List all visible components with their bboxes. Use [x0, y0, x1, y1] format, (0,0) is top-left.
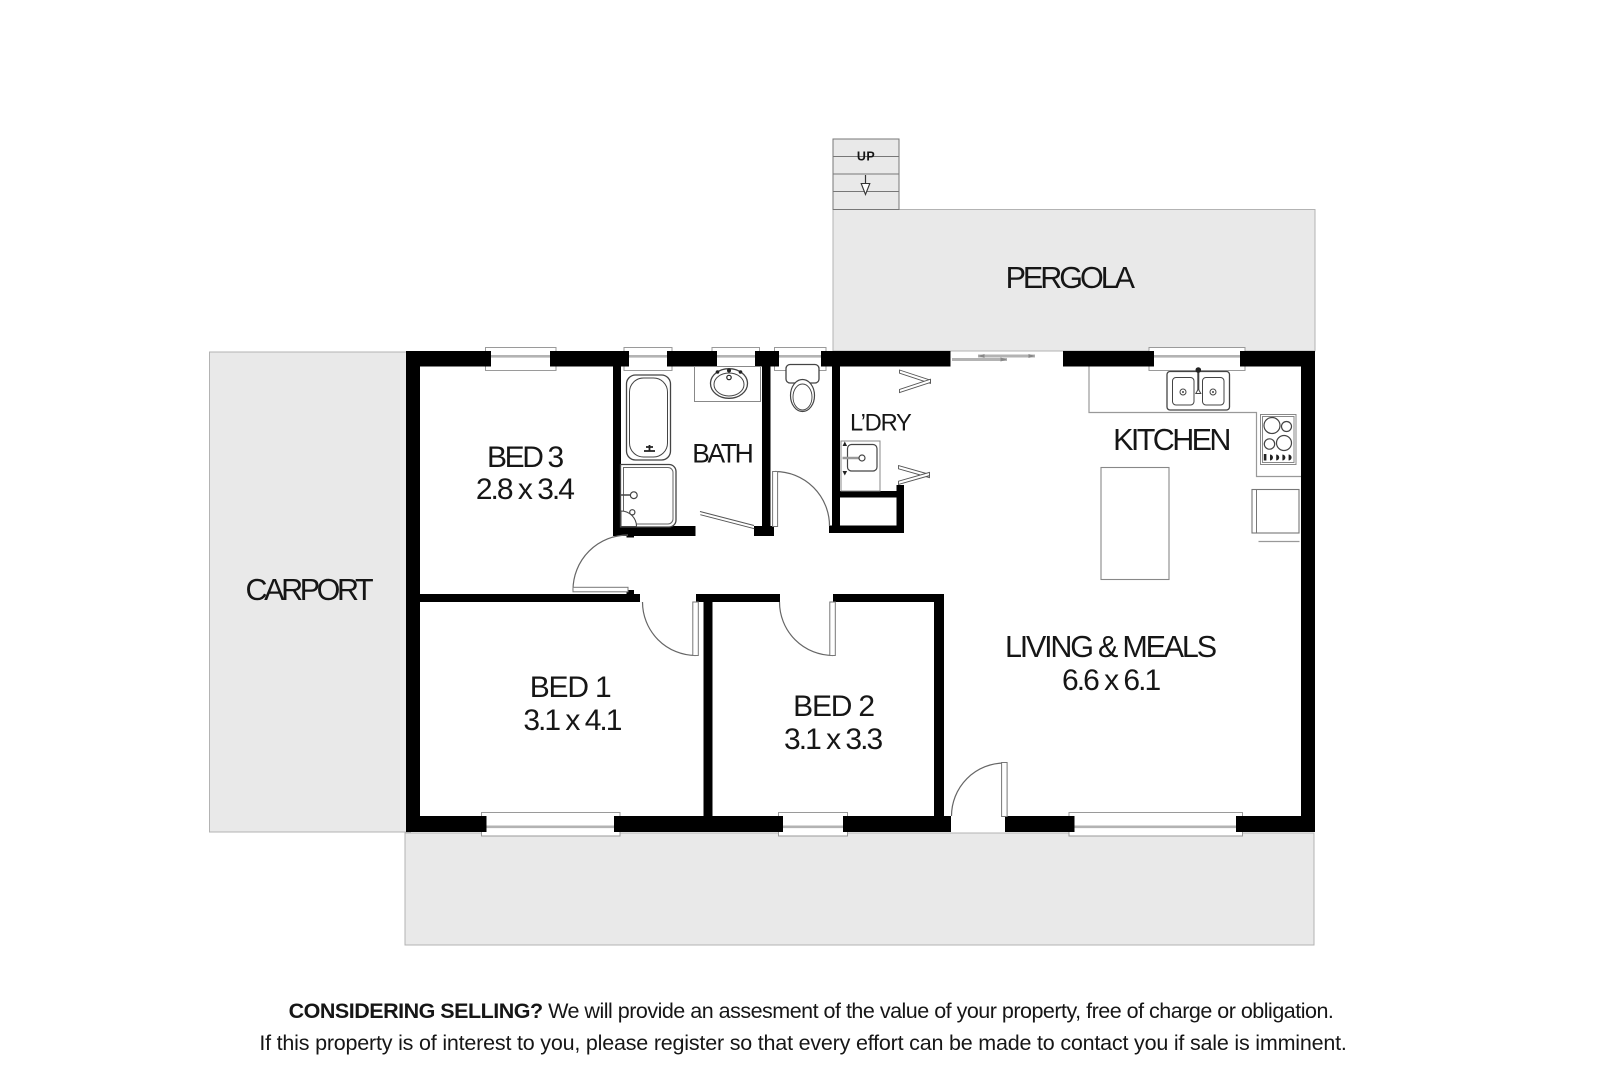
- svg-text:L’DRY: L’DRY: [850, 411, 912, 437]
- svg-text:LIVING & MEALS: LIVING & MEALS: [1005, 630, 1216, 664]
- svg-text:3.1 x 3.3: 3.1 x 3.3: [784, 723, 882, 756]
- svg-text:BED 3: BED 3: [487, 441, 563, 474]
- svg-text:CONSIDERING SELLING? We will p: CONSIDERING SELLING? We will provide an …: [289, 999, 1334, 1023]
- svg-text:2.8 x 3.4: 2.8 x 3.4: [476, 473, 574, 506]
- svg-text:PERGOLA: PERGOLA: [1006, 261, 1136, 295]
- svg-text:UP: UP: [857, 150, 875, 164]
- svg-text:3.1 x 4.1: 3.1 x 4.1: [523, 704, 621, 737]
- svg-text:BED 2: BED 2: [793, 690, 874, 723]
- svg-text:6.6 x 6.1: 6.6 x 6.1: [1062, 664, 1160, 697]
- svg-text:CARPORT: CARPORT: [246, 573, 374, 607]
- svg-text:KITCHEN: KITCHEN: [1113, 423, 1229, 457]
- svg-text:BED 1: BED 1: [530, 671, 611, 704]
- svg-text:BATH: BATH: [692, 439, 751, 469]
- svg-text:If this property is of interes: If this property is of interest to you, …: [259, 1031, 1346, 1055]
